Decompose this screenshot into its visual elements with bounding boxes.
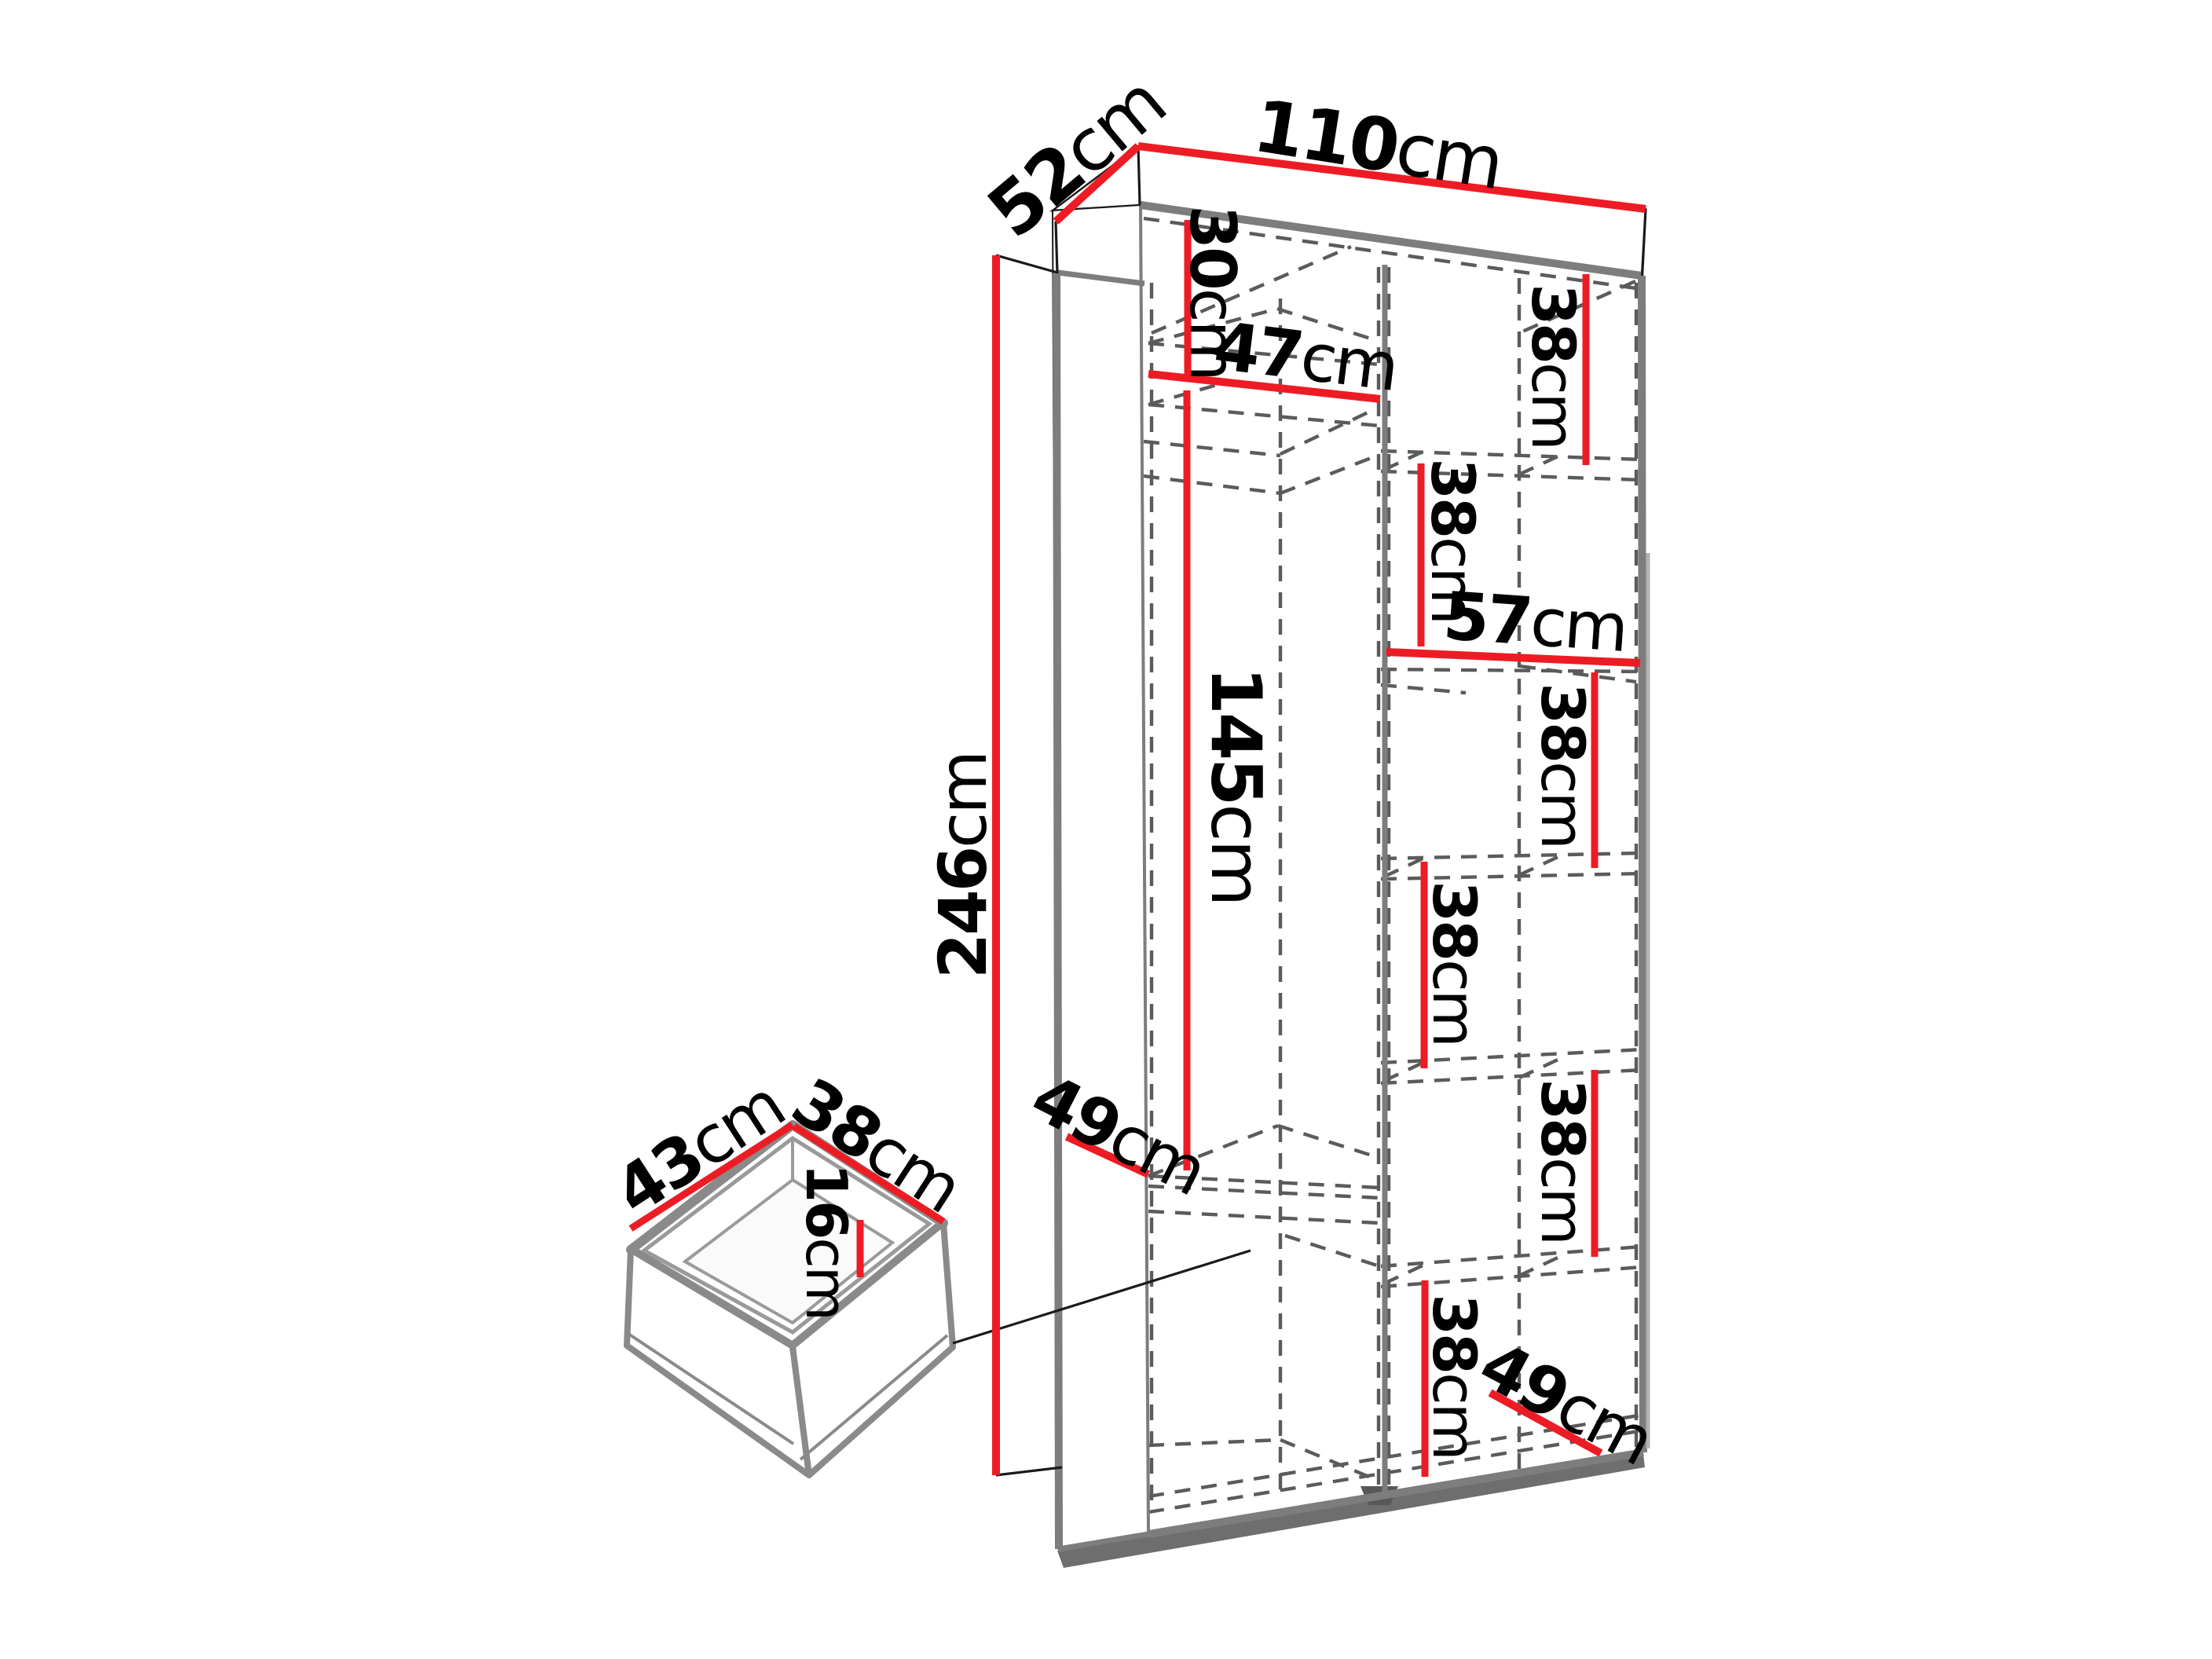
- dim-label-right-section-width: 57cm: [1441, 577, 1628, 667]
- height-extension-bottom: [996, 1467, 1062, 1475]
- dim-label-drawer-height: 16cm: [793, 1163, 859, 1319]
- diagram-page: 52cm110cm246cm30cm47cm145cm38cm38cm57cm3…: [0, 0, 2212, 1659]
- dim-label-right-shelf-4: 38cm: [1420, 881, 1490, 1046]
- dim-label-right-shelf-3: 38cm: [1529, 683, 1599, 848]
- height-extension-top: [996, 255, 1057, 273]
- top-left-corner-edge: [1056, 222, 1057, 273]
- wardrobe-dimension-diagram: 52cm110cm246cm30cm47cm145cm38cm38cm57cm3…: [0, 0, 2212, 1659]
- dim-label-total-height: 246cm: [925, 753, 1002, 979]
- wardrobe-left-side: [1053, 205, 1148, 1549]
- dim-label-right-shelf-1: 38cm: [1519, 284, 1589, 449]
- dim-label-right-shelf-5: 38cm: [1529, 1079, 1599, 1243]
- dim-label-hanging-space-height: 145cm: [1196, 667, 1277, 905]
